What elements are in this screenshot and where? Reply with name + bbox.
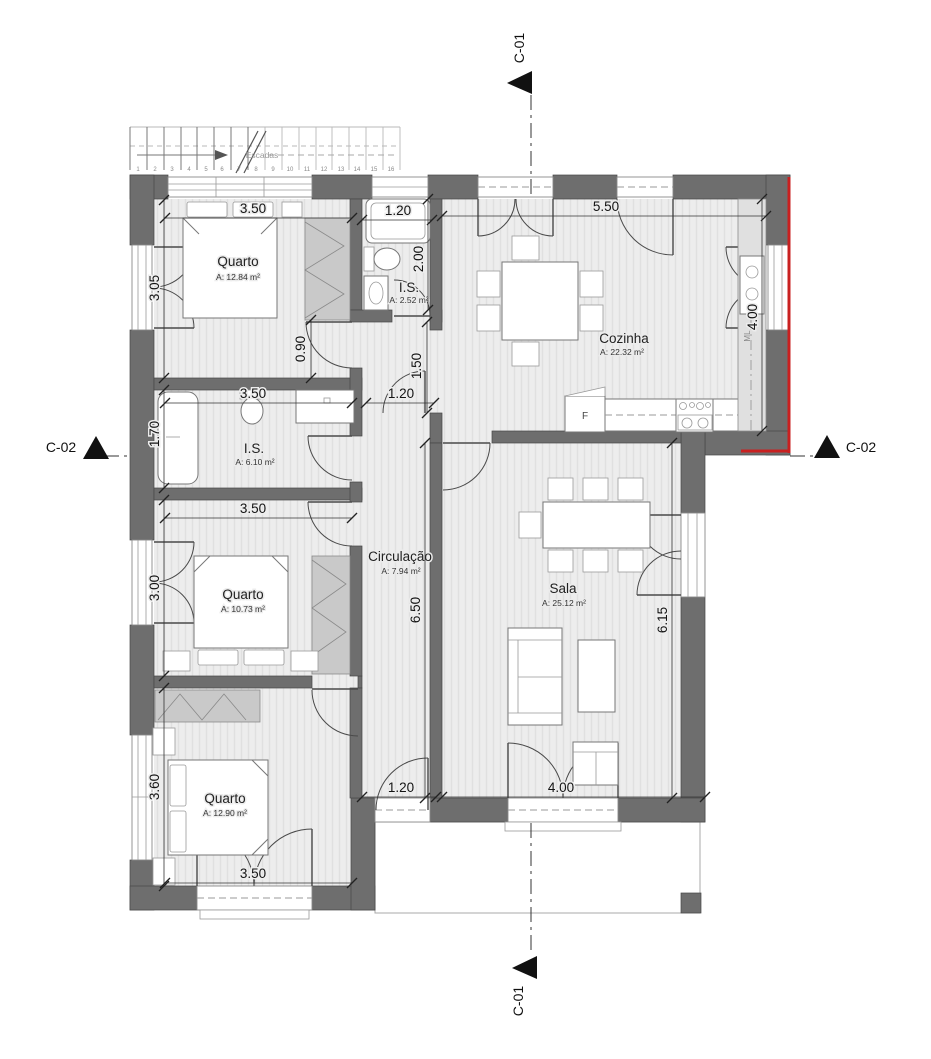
toilet-is2 — [241, 398, 263, 424]
terrace — [375, 822, 701, 913]
kitchen-table — [502, 262, 578, 340]
room-is1-area: A: 2.52 m² — [389, 295, 428, 305]
wardrobe-quarto3 — [155, 690, 260, 722]
svg-text:13: 13 — [338, 167, 345, 173]
svg-text:14: 14 — [354, 167, 361, 173]
fridge-label: F — [582, 411, 588, 422]
svg-text:5.50: 5.50 — [593, 199, 619, 214]
floor-plan-canvas: Escadas 1 2 3 4 5 6 7 8 9 10 11 12 13 14… — [0, 0, 931, 1059]
svg-text:3.50: 3.50 — [240, 501, 266, 516]
section-c01-top-label: C-01 — [511, 33, 527, 64]
svg-text:0.90: 0.90 — [293, 336, 308, 362]
svg-text:3.50: 3.50 — [240, 201, 266, 216]
svg-text:2.00: 2.00 — [411, 246, 426, 272]
toilet-is1 — [374, 248, 400, 270]
room-quarto2-area: A: 10.73 m² — [221, 604, 265, 614]
room-circulacao-name: Circulação — [368, 549, 432, 564]
svg-text:6.50: 6.50 — [408, 597, 423, 623]
svg-text:3.60: 3.60 — [147, 774, 162, 800]
svg-text:4.00: 4.00 — [745, 304, 760, 330]
svg-text:6.15: 6.15 — [655, 607, 670, 633]
room-cozinha-name: Cozinha — [599, 331, 649, 346]
room-is1-name: I.S. — [399, 280, 419, 295]
svg-text:3.00: 3.00 — [147, 575, 162, 601]
wardrobe-quarto1 — [305, 218, 350, 320]
washer-label: ML — [743, 330, 752, 342]
terrace-pillar — [681, 893, 701, 913]
svg-text:12: 12 — [321, 167, 328, 173]
room-quarto1-name: Quarto — [217, 254, 258, 269]
svg-text:1.70: 1.70 — [147, 421, 162, 447]
nightstand — [282, 202, 302, 217]
toilet-tank — [364, 247, 374, 271]
room-circulacao-area: A: 7.94 m² — [381, 566, 420, 576]
entry-step-quarto3 — [200, 910, 309, 919]
svg-text:3.50: 3.50 — [240, 386, 266, 401]
svg-text:1.20: 1.20 — [385, 203, 411, 218]
bed-quarto2 — [194, 556, 288, 648]
window-quarto1-top — [168, 177, 312, 197]
room-quarto2-name: Quarto — [222, 587, 263, 602]
entry-step-sala — [505, 822, 621, 831]
section-c01-bottom-label: C-01 — [510, 986, 526, 1017]
svg-text:1.50: 1.50 — [409, 353, 424, 379]
sofa — [508, 628, 562, 725]
svg-text:16: 16 — [388, 167, 395, 173]
nightstand — [163, 651, 190, 671]
svg-text:10: 10 — [287, 167, 294, 173]
terrace-slab — [375, 822, 700, 913]
svg-text:4.00: 4.00 — [548, 780, 574, 795]
room-sala-area: A: 25.12 m² — [542, 598, 586, 608]
floor-plan-page: Escadas 1 2 3 4 5 6 7 8 9 10 11 12 13 14… — [0, 0, 931, 1059]
section-c02-right-label: C-02 — [846, 439, 877, 455]
svg-text:1.20: 1.20 — [388, 780, 414, 795]
armchair — [578, 640, 615, 712]
svg-text:3.05: 3.05 — [147, 275, 162, 301]
svg-text:3.50: 3.50 — [240, 866, 266, 881]
window-is1-top — [372, 177, 428, 197]
room-sala-name: Sala — [549, 581, 577, 596]
svg-text:11: 11 — [304, 167, 311, 173]
nightstand — [291, 651, 318, 671]
stairs-label: Escadas — [246, 150, 279, 160]
room-is2-area: A: 6.10 m² — [235, 457, 274, 467]
svg-text:1.20: 1.20 — [388, 386, 414, 401]
room-is2-name: I.S. — [244, 441, 264, 456]
sink-counter-is2 — [296, 390, 354, 423]
room-quarto1-area: A: 12.84 m² — [216, 272, 260, 282]
svg-text:15: 15 — [371, 167, 378, 173]
furniture-quarto1 — [183, 202, 350, 320]
tv-unit — [573, 742, 618, 785]
room-quarto3-name: Quarto — [204, 791, 245, 806]
room-cozinha-area: A: 22.32 m² — [600, 347, 644, 357]
dining-table — [543, 502, 650, 548]
section-c02-left-label: C-02 — [46, 439, 77, 455]
room-quarto3-area: A: 12.90 m² — [203, 808, 247, 818]
